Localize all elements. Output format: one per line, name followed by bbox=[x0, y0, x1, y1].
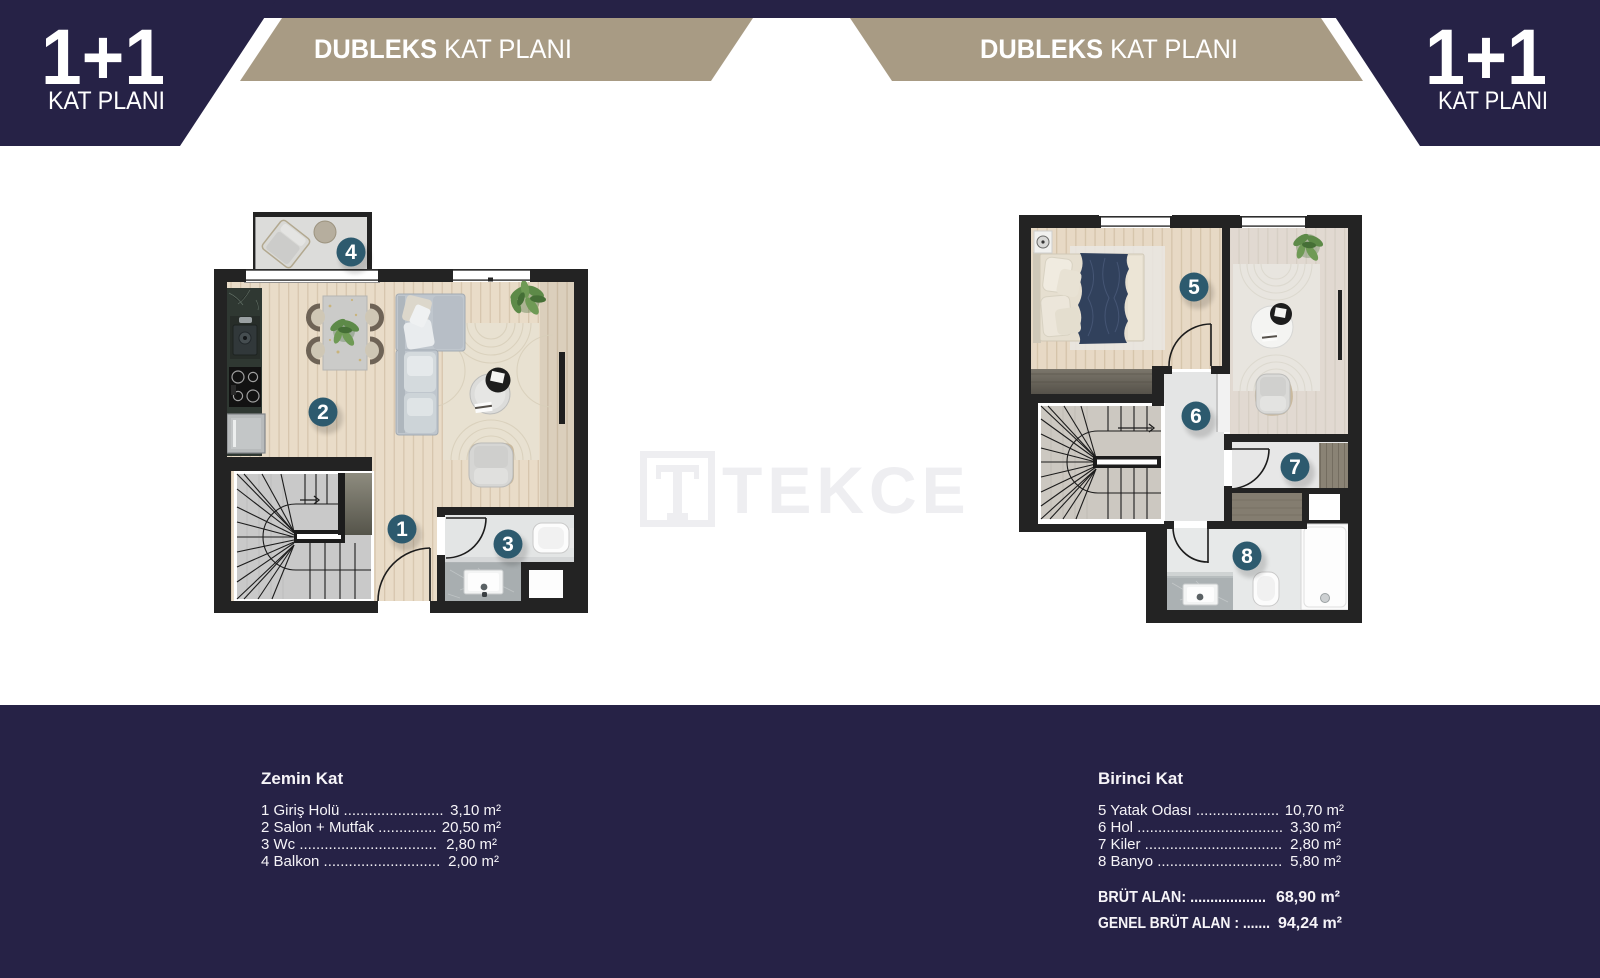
svg-text:BRÜT ALAN: ...................: BRÜT ALAN: ................... bbox=[1098, 887, 1266, 906]
svg-text:KAT PLANI: KAT PLANI bbox=[1438, 87, 1548, 115]
svg-text:KAT PLANI: KAT PLANI bbox=[48, 87, 165, 115]
svg-text:5 Yatak Odası ................: 5 Yatak Odası .................... bbox=[1098, 802, 1279, 819]
svg-text:7 Kiler ......................: 7 Kiler ................................… bbox=[1098, 836, 1282, 853]
svg-text:5: 5 bbox=[1188, 276, 1200, 299]
svg-text:3: 3 bbox=[502, 533, 514, 556]
svg-text:1 Giriş Holü .................: 1 Giriş Holü ........................ bbox=[261, 802, 444, 819]
svg-text:TEKCE: TEKCE bbox=[722, 453, 971, 527]
svg-text:3,10 m²: 3,10 m² bbox=[450, 802, 501, 819]
svg-text:DUBLEKS KAT PLANI: DUBLEKS KAT PLANI bbox=[314, 34, 572, 64]
svg-text:Zemin Kat: Zemin Kat bbox=[261, 769, 344, 788]
svg-text:4: 4 bbox=[345, 241, 357, 264]
svg-text:2,00 m²: 2,00 m² bbox=[448, 853, 499, 870]
svg-text:GENEL BRÜT ALAN : .......: GENEL BRÜT ALAN : ....... bbox=[1098, 913, 1270, 932]
svg-text:4 Balkon .....................: 4 Balkon ............................ bbox=[261, 853, 440, 870]
svg-text:DUBLEKS KAT PLANI: DUBLEKS KAT PLANI bbox=[980, 34, 1238, 64]
svg-text:6 Hol ........................: 6 Hol ..................................… bbox=[1098, 819, 1283, 836]
svg-text:20,50 m²: 20,50 m² bbox=[442, 819, 501, 836]
svg-text:1: 1 bbox=[396, 518, 408, 541]
svg-text:8: 8 bbox=[1241, 545, 1253, 568]
svg-text:2: 2 bbox=[317, 401, 329, 424]
svg-text:94,24 m²: 94,24 m² bbox=[1278, 915, 1342, 932]
svg-text:2 Salon + Mutfak .............: 2 Salon + Mutfak .............. bbox=[261, 819, 437, 836]
svg-text:2,80 m²: 2,80 m² bbox=[1290, 836, 1341, 853]
svg-text:68,90 m²: 68,90 m² bbox=[1276, 889, 1340, 906]
svg-text:5,80 m²: 5,80 m² bbox=[1290, 853, 1341, 870]
svg-text:7: 7 bbox=[1289, 456, 1301, 479]
svg-text:Birinci Kat: Birinci Kat bbox=[1098, 769, 1183, 788]
svg-text:10,70 m²: 10,70 m² bbox=[1285, 802, 1344, 819]
svg-text:3,30 m²: 3,30 m² bbox=[1290, 819, 1341, 836]
svg-text:2,80 m²: 2,80 m² bbox=[446, 836, 497, 853]
svg-text:3 Wc .........................: 3 Wc ................................. bbox=[261, 836, 437, 853]
svg-text:6: 6 bbox=[1190, 405, 1202, 428]
svg-text:8 Banyo ......................: 8 Banyo .............................. bbox=[1098, 853, 1282, 870]
